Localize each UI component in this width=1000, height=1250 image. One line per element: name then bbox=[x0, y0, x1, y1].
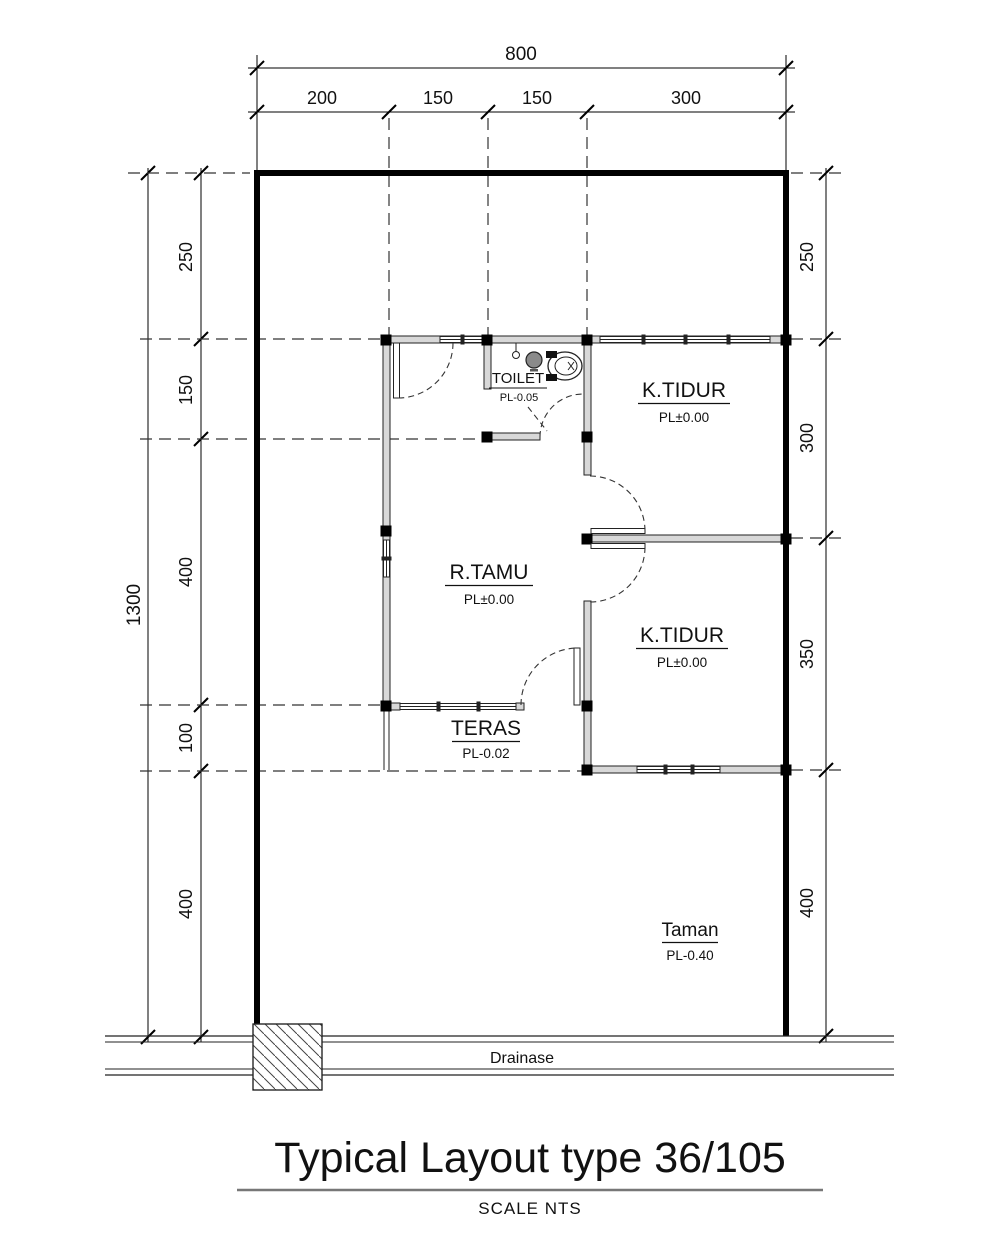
room-label-garden: Taman bbox=[661, 920, 718, 941]
title-block: Typical Layout type 36/105 SCALE NTS bbox=[237, 1134, 823, 1218]
window-living-front bbox=[400, 702, 516, 711]
room-label-bedroom2: K.TIDUR bbox=[640, 624, 724, 647]
dim-left-seg-1: 250 bbox=[176, 242, 196, 272]
dim-right-seg-3: 350 bbox=[797, 639, 817, 669]
right-dimensions: 250 300 350 400 bbox=[797, 166, 833, 1043]
terrace-edge bbox=[384, 710, 389, 770]
left-dimensions: 1300 250 150 400 100 400 bbox=[124, 166, 208, 1044]
room-level-garden: PL-0.40 bbox=[666, 948, 713, 963]
dim-top-overall: 800 bbox=[505, 44, 537, 65]
wc-icon bbox=[546, 351, 582, 381]
room-level-bedroom1: PL±0.00 bbox=[659, 410, 709, 425]
wall-interior-horizontal bbox=[584, 535, 789, 542]
sink-icon bbox=[526, 352, 542, 372]
window-living-left bbox=[382, 540, 391, 577]
door-arc-front bbox=[521, 648, 578, 705]
door-leaf-bedroom2 bbox=[591, 544, 645, 549]
room-label-toilet: TOILET bbox=[492, 370, 544, 387]
door-arc-bedroom2 bbox=[590, 547, 645, 602]
window-bedroom2-bottom bbox=[637, 765, 720, 774]
door-arc-toilet bbox=[540, 394, 583, 437]
plot-boundary-wall bbox=[257, 173, 786, 1036]
room-level-toilet: PL-0.05 bbox=[500, 392, 539, 404]
window-toilet-top bbox=[440, 335, 487, 344]
dim-left-seg-3: 400 bbox=[176, 557, 196, 587]
wall-front-mid bbox=[516, 703, 524, 710]
dim-left-seg-4: 100 bbox=[176, 723, 196, 753]
drawing-title: Typical Layout type 36/105 bbox=[274, 1134, 786, 1182]
door-leaf-back bbox=[394, 343, 400, 398]
dim-top-seg-2: 150 bbox=[423, 88, 453, 108]
dim-top-seg-4: 300 bbox=[671, 88, 701, 108]
door-leaf-bedroom1 bbox=[591, 529, 645, 534]
door-leaf-front bbox=[574, 648, 580, 705]
dim-right-seg-2: 300 bbox=[797, 423, 817, 453]
wall-toilet-left bbox=[484, 343, 491, 389]
room-level-terrace: PL-0.02 bbox=[462, 746, 509, 761]
grid-lines bbox=[128, 118, 848, 771]
room-level-living: PL±0.00 bbox=[464, 592, 514, 607]
door-arc-back bbox=[398, 343, 453, 398]
room-label-bedroom1: K.TIDUR bbox=[642, 379, 726, 402]
window-bedroom1-top bbox=[600, 335, 770, 344]
wall-left bbox=[383, 336, 390, 710]
dim-top-seg-1: 200 bbox=[307, 88, 337, 108]
room-label-terrace: TERAS bbox=[451, 717, 521, 740]
site-drainage: Drainase bbox=[105, 1024, 894, 1090]
drawing-scale-note: SCALE NTS bbox=[478, 1199, 581, 1218]
gate-hatch-block bbox=[253, 1024, 322, 1090]
wall-interior-vertical-lower bbox=[584, 601, 591, 767]
toilet-label-leader bbox=[528, 407, 547, 431]
floor-plan-drawing: 800 200 150 150 300 1300 250 150 400 100… bbox=[0, 0, 1000, 1250]
floor-plan-sheet: 800 200 150 150 300 1300 250 150 400 100… bbox=[0, 0, 1000, 1250]
top-dimensions: 800 200 150 150 300 bbox=[248, 44, 795, 170]
floor-drain-icon bbox=[513, 352, 520, 359]
room-label-living: R.TAMU bbox=[450, 561, 529, 584]
dim-left-overall: 1300 bbox=[124, 584, 145, 626]
dim-left-seg-5: 400 bbox=[176, 889, 196, 919]
door-arc-bedroom1 bbox=[590, 476, 645, 531]
dim-left-seg-2: 150 bbox=[176, 375, 196, 405]
drainage-label: Drainase bbox=[490, 1050, 554, 1067]
dim-right-seg-4: 400 bbox=[797, 888, 817, 918]
dim-top-seg-3: 150 bbox=[522, 88, 552, 108]
room-level-bedroom2: PL±0.00 bbox=[657, 655, 707, 670]
dim-right-seg-1: 250 bbox=[797, 242, 817, 272]
wall-interior-vertical-upper bbox=[584, 343, 591, 475]
